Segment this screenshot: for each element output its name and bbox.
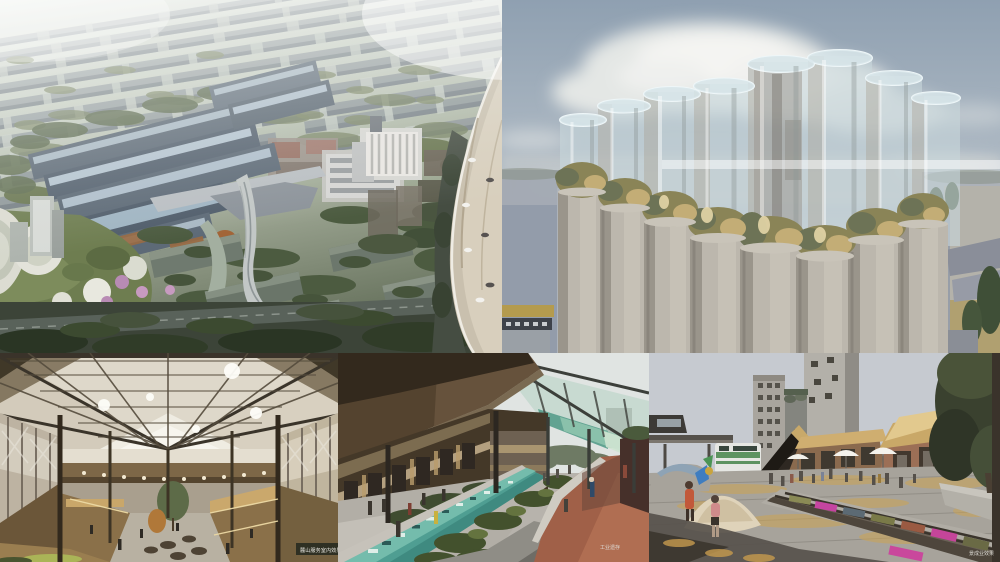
svg-text:麓山服务室内效果: 麓山服务室内效果 [300, 546, 338, 554]
svg-text:景成业效果: 景成业效果 [969, 550, 994, 557]
svg-text:工业遗存: 工业遗存 [600, 544, 620, 551]
